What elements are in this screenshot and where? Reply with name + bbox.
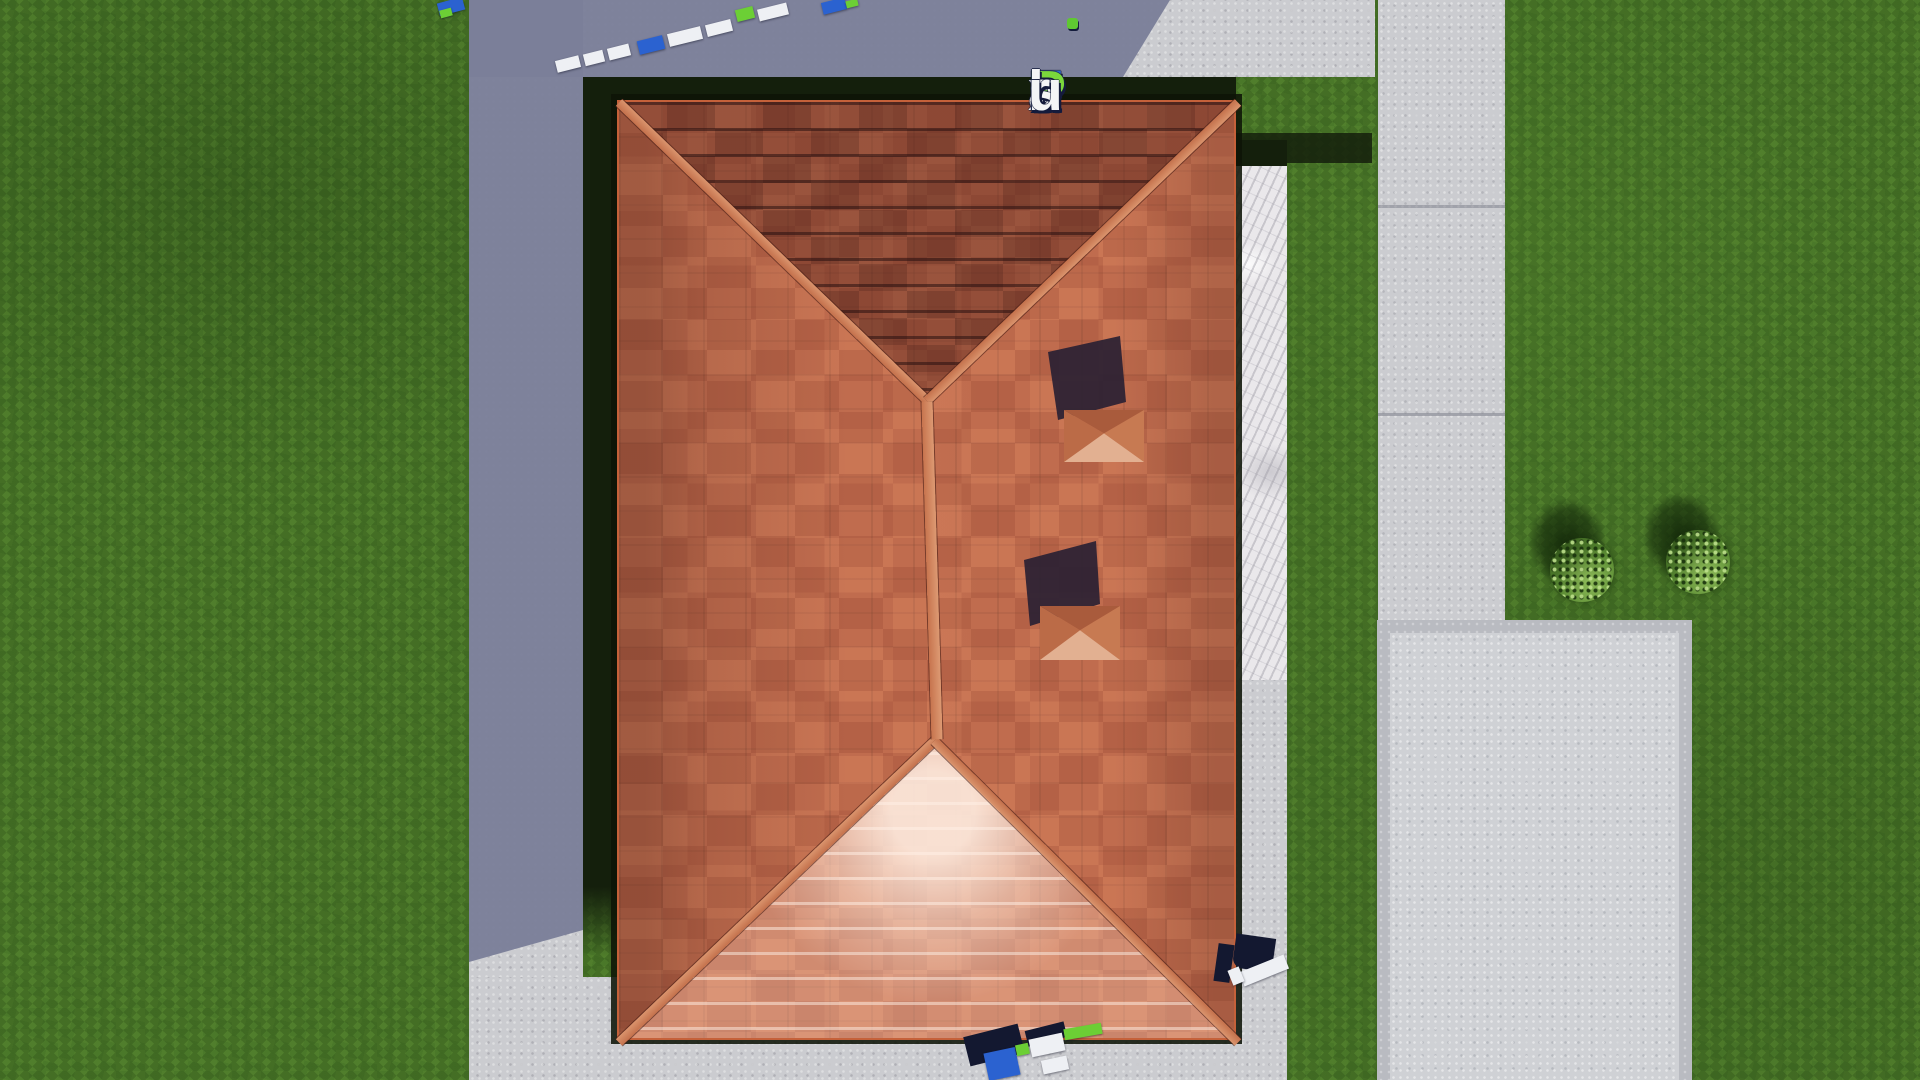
parking-pad	[1377, 620, 1692, 1080]
chimney1-cap	[1064, 410, 1144, 462]
hip-roof	[617, 100, 1236, 1040]
aerial-render: FixPlans.ru	[0, 0, 1920, 1080]
parking-pad-surface	[1390, 633, 1679, 1080]
bush-2-foliage	[1666, 530, 1730, 594]
house-shadow-left	[469, 0, 583, 962]
path-right	[1378, 0, 1505, 622]
bush-1-foliage	[1550, 538, 1614, 602]
bush-1	[1524, 498, 1634, 610]
i-dot	[1067, 18, 1078, 29]
chimney2-cap	[1040, 606, 1120, 660]
bush-2	[1638, 492, 1748, 604]
